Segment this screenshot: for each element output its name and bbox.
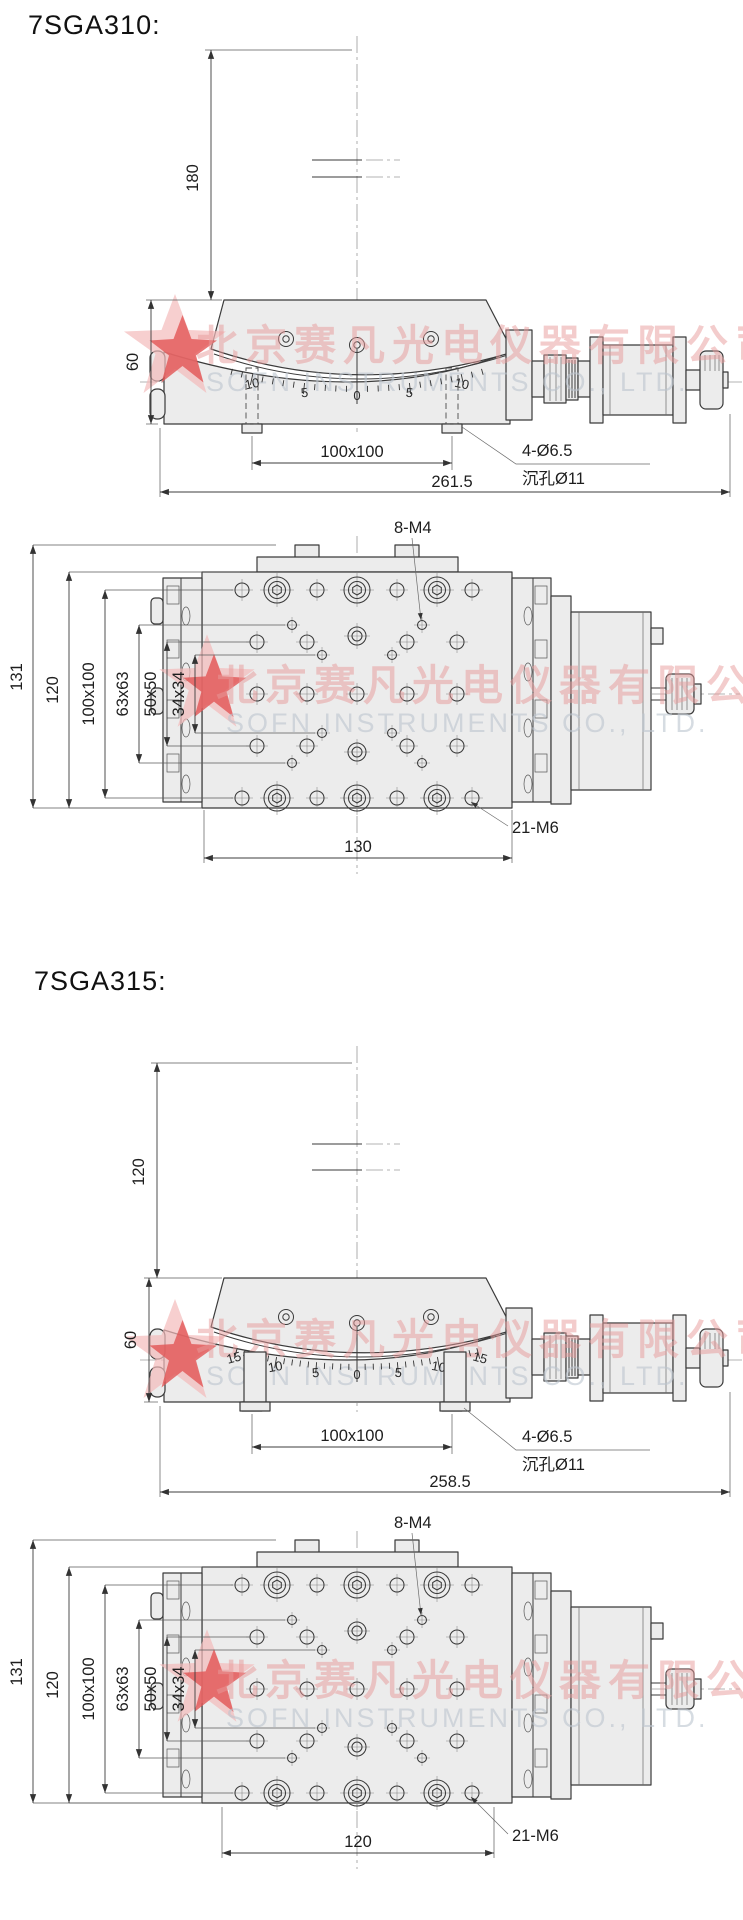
svg-text:131: 131 [8,1658,26,1686]
svg-text:沉孔Ø11: 沉孔Ø11 [522,469,585,488]
break-lines [312,1144,362,1170]
svg-text:8-M4: 8-M4 [394,519,432,537]
svg-text:63x63: 63x63 [114,672,132,717]
svg-text:60: 60 [122,1331,140,1349]
watermark-cn: 北京赛凡光电仪器有限公司 [216,1657,743,1704]
svg-text:5: 5 [394,1365,403,1381]
svg-text:21-M6: 21-M6 [512,1827,559,1845]
product1-title: 7SGA310: [28,10,161,40]
svg-text:261.5: 261.5 [431,473,472,491]
svg-text:10: 10 [267,1358,284,1375]
svg-text:50x50: 50x50 [142,672,160,717]
watermark-cn: 北京赛凡光电仪器有限公司 [216,662,743,709]
note-mount-holes: 4-Ø6.5 沉孔Ø11 [464,1408,650,1474]
dim-base-width: 120 [222,1807,494,1858]
watermark-cn: 北京赛凡光电仪器有限公司 [196,1316,743,1363]
watermark-cn: 北京赛凡光电仪器有限公司 [196,322,743,369]
svg-text:180: 180 [184,164,202,192]
svg-text:5: 5 [300,385,309,401]
svg-text:63x63: 63x63 [114,1667,132,1712]
svg-text:120: 120 [44,676,62,704]
product1-drawing: 7SGA310: 180 北京赛凡光电仪器有限公司 SOFN INSTRUMEN… [8,10,743,874]
svg-text:60: 60 [124,353,142,371]
svg-text:4-Ø6.5: 4-Ø6.5 [522,442,572,460]
svg-text:100x100: 100x100 [80,662,98,725]
svg-text:5: 5 [405,385,414,401]
drawing-sheet: 7SGA310: 180 北京赛凡光电仪器有限公司 SOFN INSTRUMEN… [0,0,743,1920]
svg-text:0: 0 [353,1367,360,1382]
goniometer-drawing-svg: 7SGA310: 180 北京赛凡光电仪器有限公司 SOFN INSTRUMEN… [0,0,743,1920]
svg-text:4-Ø6.5: 4-Ø6.5 [522,1428,572,1446]
svg-text:100x100: 100x100 [80,1657,98,1720]
svg-text:131: 131 [8,663,26,691]
product2-drawing: 7SGA315: 120 北京赛凡光电仪器有限公司 SOFN INSTRUMEN… [8,966,743,1869]
svg-text:5: 5 [311,1365,320,1381]
dim-mount-spacing: 100x100 [252,1414,452,1454]
watermark-en: SOFN INSTRUMENTS CO., LTD. [226,708,709,738]
svg-text:34x34: 34x34 [170,1667,188,1712]
svg-text:8-M4: 8-M4 [394,1514,432,1532]
svg-text:258.5: 258.5 [429,1473,470,1491]
svg-text:21-M6: 21-M6 [512,819,559,837]
svg-text:130: 130 [344,838,372,856]
note-m6-holes: 21-M6 [471,1797,559,1845]
svg-text:100x100: 100x100 [320,443,383,461]
svg-text:沉孔Ø11: 沉孔Ø11 [522,1455,585,1474]
svg-text:120: 120 [44,1671,62,1699]
svg-text:10: 10 [453,375,470,393]
dim-mount-spacing: 100x100 [252,436,452,470]
break-lines [312,160,362,177]
dim-base-width: 130 [204,810,512,863]
watermark-en: SOFN INSTRUMENTS CO., LTD. [206,367,689,397]
svg-text:120: 120 [344,1833,372,1851]
note-mount-holes: 4-Ø6.5 沉孔Ø11 [462,427,650,488]
svg-text:50x50: 50x50 [142,1667,160,1712]
svg-text:120: 120 [130,1158,148,1186]
svg-text:0: 0 [353,388,360,403]
svg-text:100x100: 100x100 [320,1427,383,1445]
product2-title: 7SGA315: [34,966,167,996]
dim-height-to-center: 180 [184,50,352,300]
svg-text:34x34: 34x34 [170,672,188,717]
watermark-en: SOFN INSTRUMENTS CO., LTD. [226,1703,709,1733]
